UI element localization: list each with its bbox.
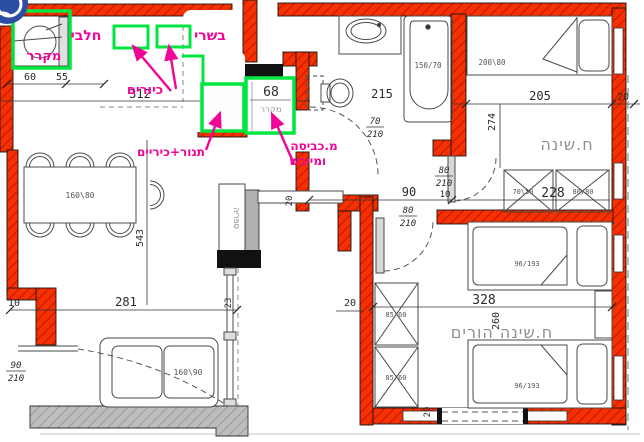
dim-20-bar: 20	[285, 196, 295, 207]
annotation-laundry-1: מ.כביסה	[290, 139, 337, 153]
highlight-oven-box	[202, 84, 244, 131]
room-bedroom: ח.שינה	[540, 135, 593, 154]
dim-55: 55	[56, 72, 68, 83]
dim-543: 543	[135, 229, 146, 247]
door-bath-num: 70	[370, 117, 381, 127]
annotation-meat: בשרי	[194, 28, 226, 44]
dim-20-right: 20	[617, 92, 629, 103]
door-bedroom-den: 210	[436, 179, 452, 189]
master-bed-1	[468, 222, 612, 290]
door-bedroom-num: 80	[439, 166, 450, 176]
dim-20-master: 20	[344, 298, 356, 309]
dim-23: 23	[224, 298, 234, 309]
floor-plan-screenshot: 60 55 312 215 205 20 274 228 90 10 543 2…	[0, 0, 644, 442]
dim-20-balcony: 20	[423, 407, 433, 418]
door-master-num: 80	[403, 206, 414, 216]
dim-10-left: 10	[8, 298, 20, 309]
dim-90: 90	[402, 185, 416, 199]
annotation-oven-stove: תנור+כיריים	[137, 145, 205, 159]
annotation-sinks: כיורים	[127, 83, 163, 98]
column-black-lower	[217, 250, 261, 268]
appliance-box-number: 68	[263, 85, 279, 100]
bed-single-size: 200\80	[478, 58, 506, 67]
closet-master-size-2: 85/60	[385, 374, 406, 382]
bed-master-size-1: 96/193	[514, 260, 539, 268]
dim-274: 274	[487, 113, 498, 131]
counter-column-gray	[245, 190, 259, 252]
dim-60: 60	[24, 72, 36, 83]
door-master-den: 210	[400, 219, 416, 229]
dim-281: 281	[115, 295, 137, 309]
master-bed-2	[468, 340, 612, 408]
annotation-laundry-2: ומייבש	[290, 154, 326, 168]
dim-10-hall: 10	[440, 190, 451, 200]
bookcase-label: ספריה	[232, 207, 241, 229]
closet-master-size-1: 85/60	[385, 311, 406, 319]
appliance-box-label: מקרר	[260, 105, 281, 115]
sofa-size: 160\90	[174, 368, 203, 377]
room-master-bedroom: ח.שינה הורים	[451, 323, 553, 342]
dim-205: 205	[529, 89, 551, 103]
dim-328: 328	[472, 293, 495, 308]
closet-square-size: 80/80	[572, 188, 593, 196]
annotation-dairy: חלבי	[71, 28, 102, 44]
bathtub-size: 150/70	[414, 61, 442, 70]
door-entry-den: 210	[8, 374, 24, 384]
door-entry-num: 90	[11, 361, 22, 371]
dim-228: 228	[541, 186, 564, 201]
annotation-fridge: מקרר	[27, 49, 62, 64]
closet-small-size: 70\50	[512, 188, 533, 196]
kitchen-bar	[258, 191, 343, 203]
dim-215: 215	[371, 87, 393, 101]
door-bath-den: 210	[367, 130, 383, 140]
bed-master-size-2: 96/193	[514, 382, 539, 390]
table-size: 160\80	[66, 191, 95, 200]
balcony-opening	[437, 408, 528, 424]
